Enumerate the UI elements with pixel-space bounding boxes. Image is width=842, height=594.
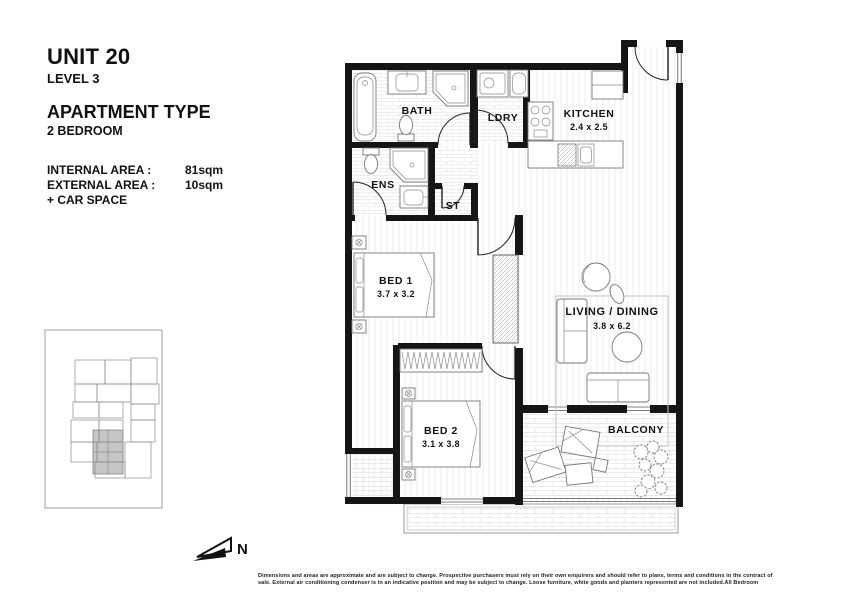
ensuite-vanity [400, 186, 428, 208]
key-plan [45, 330, 162, 508]
room-label-bed2: BED 2 [424, 425, 458, 437]
bathtub [354, 73, 376, 141]
room-label-bed1: BED 1 [379, 275, 413, 287]
room-dims-bed1: 3.7 x 3.2 [377, 289, 415, 299]
dining-table [612, 332, 642, 362]
disclaimer-line-1: Dimensions and areas are approximate and… [258, 573, 840, 580]
kitchen-bench [528, 141, 623, 168]
north-label: N [237, 541, 248, 558]
kitchen-stove [528, 102, 553, 140]
room-label-ens: ENS [371, 179, 394, 191]
bath-toilet [398, 116, 414, 142]
bed2-wardrobe [400, 349, 482, 372]
room-label-ldry: LDRY [488, 112, 519, 124]
kitchen-fridge [592, 71, 623, 99]
laundry-tub [510, 70, 528, 97]
room-label-living-dining: LIVING / DINING [565, 306, 658, 318]
floor-plan-drawing: BATH LDRY KITCHEN 2.4 x 2.5 ENS ST BED 1… [0, 0, 842, 594]
disclaimer-text: Dimensions and areas are approximate and… [258, 573, 840, 586]
room-label-kitchen: KITCHEN [564, 108, 615, 120]
floorplan-page: UNIT 20 LEVEL 3 APARTMENT TYPE 2 BEDROOM… [0, 0, 842, 594]
laundry-washer [477, 70, 508, 97]
bed1-wardrobe [493, 255, 518, 343]
room-dims-bed2: 3.1 x 3.8 [422, 439, 460, 449]
bath-vanity [388, 71, 426, 94]
disclaimer-line-2: sale. External air conditioning condense… [258, 580, 840, 587]
living-sofa2 [587, 373, 649, 402]
room-label-bath: BATH [402, 105, 433, 117]
north-arrow: N [193, 538, 248, 561]
room-label-st: ST [446, 200, 461, 212]
room-label-balcony: BALCONY [608, 424, 664, 436]
balcony-lounger-1 [561, 426, 600, 458]
room-dims-living-dining: 3.8 x 6.2 [593, 321, 631, 331]
ensuite-toilet [363, 148, 379, 174]
terrace-outline [404, 504, 678, 533]
room-dims-kitchen: 2.4 x 2.5 [570, 122, 608, 132]
